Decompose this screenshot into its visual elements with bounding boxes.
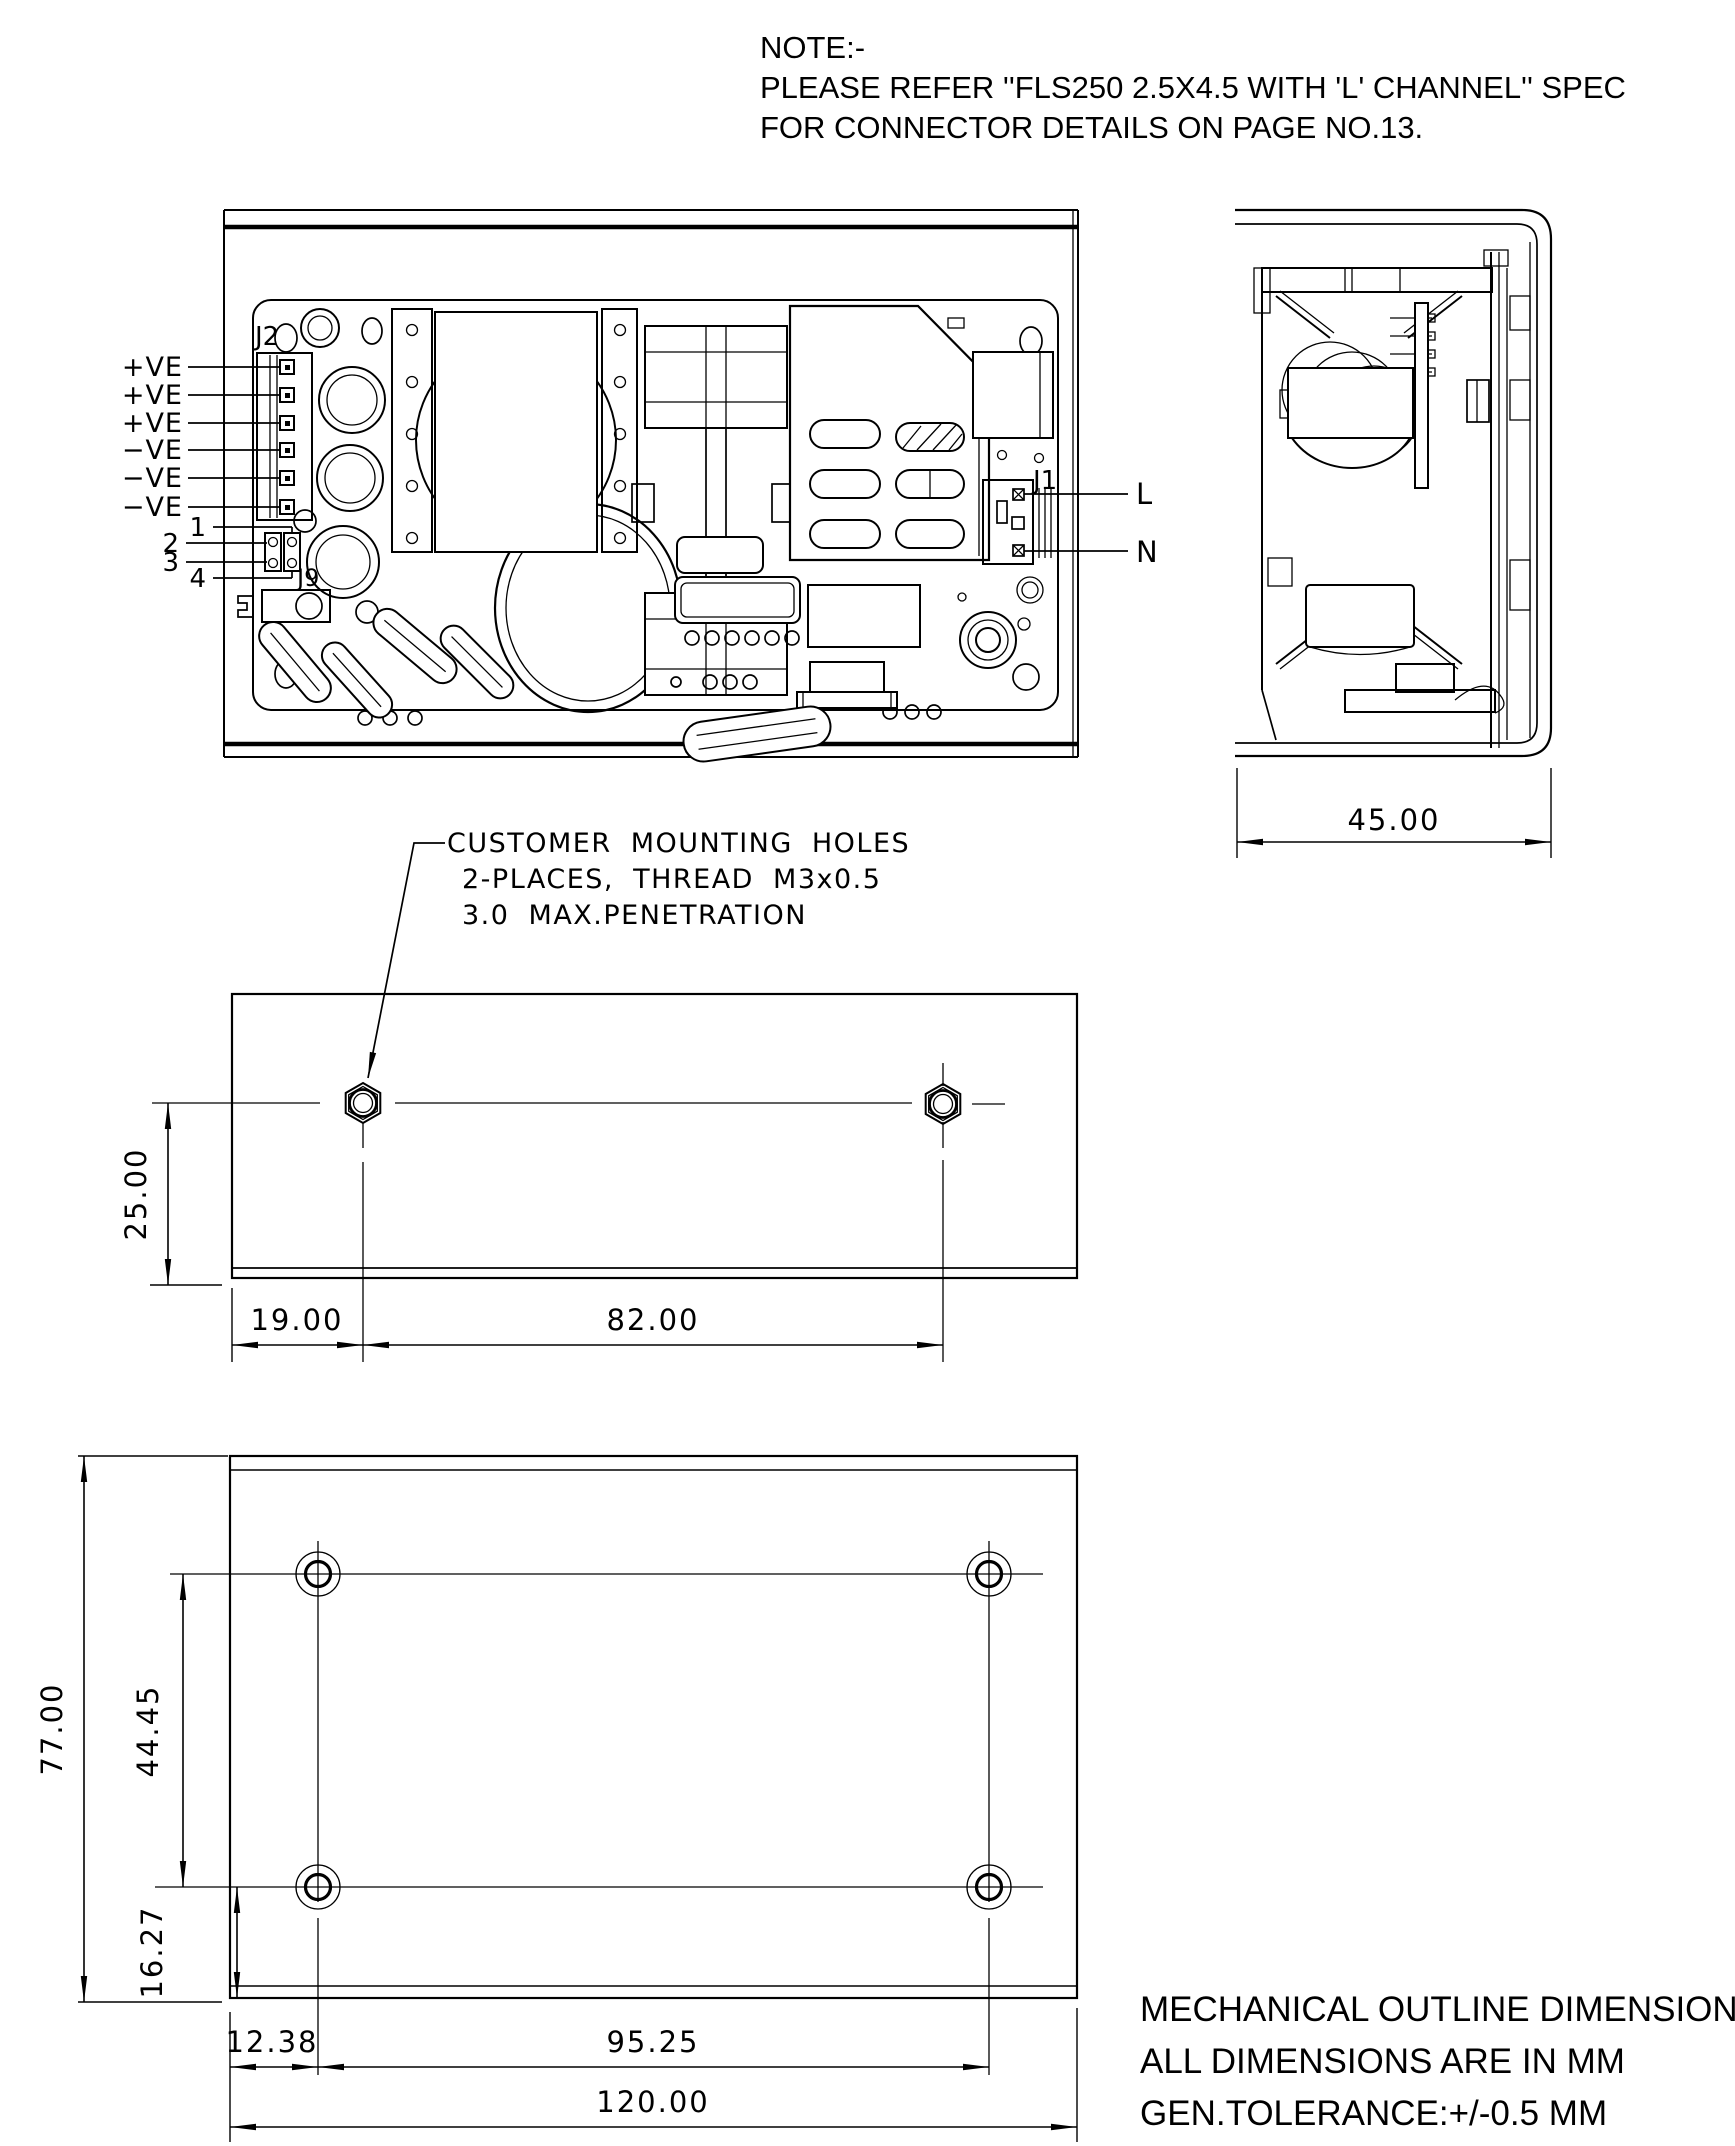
bottom-outline	[230, 1456, 1077, 1998]
dim-19-value: 19.00	[250, 1303, 343, 1337]
footer-line1: MECHANICAL OUTLINE DIMENSIONS	[1140, 1990, 1735, 2029]
neutral-label: N	[1136, 535, 1160, 569]
dim-82-value: 82.00	[606, 1303, 699, 1337]
hatched-slot	[896, 423, 964, 451]
note-block: NOTE:- PLEASE REFER ''FLS250 2.5X4.5 WIT…	[760, 30, 1626, 145]
leader-line	[368, 843, 445, 1078]
core-assembly-upper	[645, 326, 787, 428]
dim-9525-value: 95.25	[606, 2025, 699, 2059]
output-pin-label: −VE	[122, 435, 183, 466]
dim-77-value: 77.00	[35, 1682, 69, 1775]
note-line1: PLEASE REFER ''FLS250 2.5X4.5 WITH 'L' C…	[760, 70, 1626, 105]
bottom-view: 77.00 44.45 16.27 12.38 95.25 120.00	[35, 1456, 1077, 2142]
dim-19: 19.00	[232, 1288, 363, 1362]
dim-1627: 16.27	[135, 1887, 237, 1999]
aux-pin-label: 3	[162, 548, 179, 578]
output-pin-label: +VE	[122, 380, 183, 411]
j1-label: J1	[1031, 466, 1057, 496]
note-title: NOTE:-	[760, 30, 865, 65]
dim-1238: 12.38	[225, 2012, 318, 2142]
footer-block: MECHANICAL OUTLINE DIMENSIONS ALL DIMENS…	[1140, 1990, 1735, 2133]
mounting-note-line3: 3.0 MAX.PENETRATION	[462, 900, 807, 931]
middle-outline	[232, 994, 1077, 1278]
mounting-note-line2: 2-PLACES, THREAD M3x0.5	[462, 864, 881, 895]
j2-label: J2	[253, 322, 279, 352]
transformer-body	[435, 312, 597, 552]
aux-pin-label: 4	[189, 564, 206, 594]
drawing-page: NOTE:- PLEASE REFER ''FLS250 2.5X4.5 WIT…	[0, 0, 1735, 2146]
aux-pin-label: 1	[189, 513, 206, 543]
mounting-nut-left	[346, 1083, 381, 1123]
mounting-note-line1: CUSTOMER MOUNTING HOLES	[447, 828, 910, 859]
output-pin-label: +VE	[122, 352, 183, 383]
middle-view: 25.00 19.00 82.00	[119, 994, 1077, 1362]
dim-45-value: 45.00	[1347, 803, 1440, 837]
side-view: 45.00	[1235, 210, 1551, 858]
mechanical-outline-drawing: NOTE:- PLEASE REFER ''FLS250 2.5X4.5 WIT…	[0, 0, 1735, 2146]
top-view: J2 +VE +VE +VE −VE	[122, 210, 1160, 764]
dim-45: 45.00	[1237, 768, 1551, 858]
line-label: L	[1136, 477, 1154, 511]
dim-4445: 44.45	[131, 1574, 183, 1887]
output-pin-label: −VE	[122, 463, 183, 494]
dim-4445-value: 44.45	[131, 1684, 165, 1777]
footer-line3: GEN.TOLERANCE:+/-0.5 MM	[1140, 2094, 1607, 2133]
dim-25-value: 25.00	[119, 1147, 153, 1240]
dim-25: 25.00	[119, 1103, 222, 1285]
dim-1627-value: 16.27	[135, 1905, 169, 1998]
output-pin-label: −VE	[122, 492, 183, 523]
mounting-nut-right	[926, 1084, 961, 1124]
side-internals	[1254, 250, 1530, 748]
dim-120-value: 120.00	[596, 2085, 709, 2119]
note-line2: FOR CONNECTOR DETAILS ON PAGE NO.13.	[760, 110, 1423, 145]
dim-9525: 95.25	[318, 2025, 989, 2067]
dim-1238-value: 12.38	[225, 2025, 318, 2059]
j9-label: J9	[295, 564, 319, 592]
bottom-centerlines	[155, 1541, 1043, 2075]
base-holes	[296, 1552, 1011, 1909]
footer-line2: ALL DIMENSIONS ARE IN MM	[1140, 2042, 1625, 2081]
dim-82: 82.00	[363, 1303, 943, 1345]
mounting-note: CUSTOMER MOUNTING HOLES 2-PLACES, THREAD…	[368, 828, 910, 1078]
